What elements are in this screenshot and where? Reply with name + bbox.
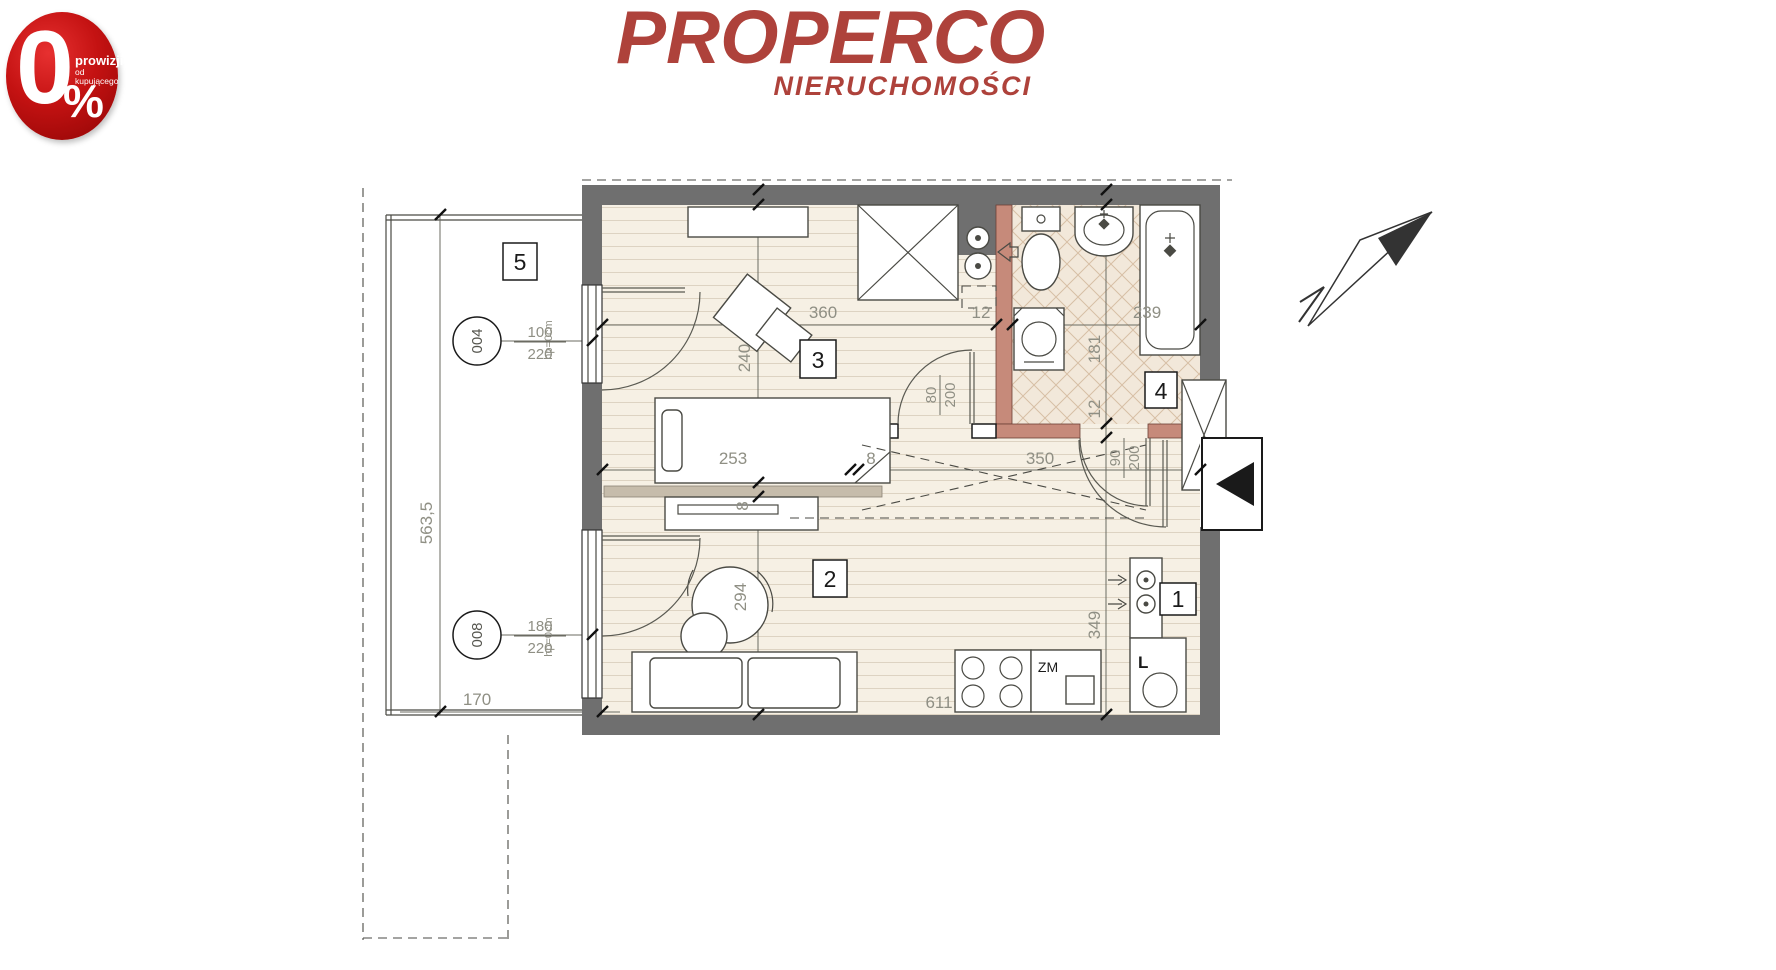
sofa	[632, 652, 857, 712]
washbasin	[1075, 207, 1133, 256]
bathtub	[1140, 205, 1200, 355]
room-label-3: 3	[800, 340, 836, 378]
dim-top-2: 12	[972, 303, 991, 322]
sink-label: ZM	[1038, 659, 1058, 675]
dim-left-2: 8	[733, 501, 752, 510]
room-2-number: 2	[824, 566, 837, 592]
dim-right-3: 349	[1085, 611, 1104, 639]
tag-004: 004	[469, 328, 486, 353]
balcony-dashed-outline	[363, 188, 508, 940]
washing-machine	[1014, 308, 1064, 370]
tag-008: 008	[469, 622, 486, 647]
north-arrow-icon	[1299, 212, 1432, 326]
floor-plan: ZM L	[0, 0, 1776, 970]
dim-top-3: 239	[1133, 303, 1161, 322]
bathroom-wall-west	[996, 205, 1012, 424]
bed	[655, 398, 890, 483]
door2-height: 200	[1126, 445, 1143, 470]
room-label-5: 5	[503, 243, 537, 280]
fridge-label: L	[1138, 653, 1148, 672]
room-5-number: 5	[514, 249, 527, 275]
wall-right-b	[1200, 527, 1220, 735]
tag-004-height: 220	[527, 346, 552, 363]
room-label-4: 4	[1145, 372, 1177, 408]
dim-bottom: 611	[925, 693, 952, 712]
dim-top-1: 360	[809, 303, 837, 322]
tag-004-width: 100	[527, 324, 552, 341]
page: 0 % prowizji od kupującego PROPERCO NIER…	[0, 0, 1776, 970]
dim-left-1: 240	[735, 344, 754, 372]
dim-balcony-width: 170	[463, 690, 491, 709]
dim-balcony-height: 563,5	[417, 502, 436, 545]
wall-bottom	[582, 715, 1220, 735]
wall-top	[582, 185, 1220, 205]
partition-low-wall	[604, 486, 882, 497]
kitchen-sink-cabinet: ZM	[1031, 650, 1101, 712]
dim-right-1: 181	[1085, 335, 1104, 363]
bathroom-wall-south-a	[996, 424, 1080, 438]
room-label-2: 2	[813, 560, 847, 597]
shelf	[688, 207, 808, 237]
wall-left-b	[582, 383, 602, 530]
door1-height: 200	[942, 382, 959, 407]
stove	[955, 650, 1031, 712]
dim-right-2: 12	[1085, 400, 1104, 419]
room-3-number: 3	[812, 347, 825, 373]
room-1-number: 1	[1172, 586, 1185, 612]
dim-left-3: 294	[731, 583, 750, 611]
dim-mid-2: 8	[866, 449, 875, 468]
dim-mid-1: 253	[719, 449, 747, 468]
fridge: L	[1130, 638, 1186, 712]
wall-left-a	[582, 185, 602, 285]
toilet	[1022, 207, 1060, 290]
window-tags: 004 100 220 008 180 220	[453, 317, 566, 659]
room-4-number: 4	[1155, 378, 1168, 404]
balcony	[363, 188, 602, 940]
tag-008-width: 180	[527, 618, 552, 635]
dim-mid-3: 350	[1026, 449, 1054, 468]
room-label-1: 1	[1160, 583, 1196, 615]
wardrobe	[858, 205, 958, 300]
door2-width: 90	[1107, 450, 1124, 467]
door1-width: 80	[923, 387, 940, 404]
tag-008-height: 220	[527, 640, 552, 657]
